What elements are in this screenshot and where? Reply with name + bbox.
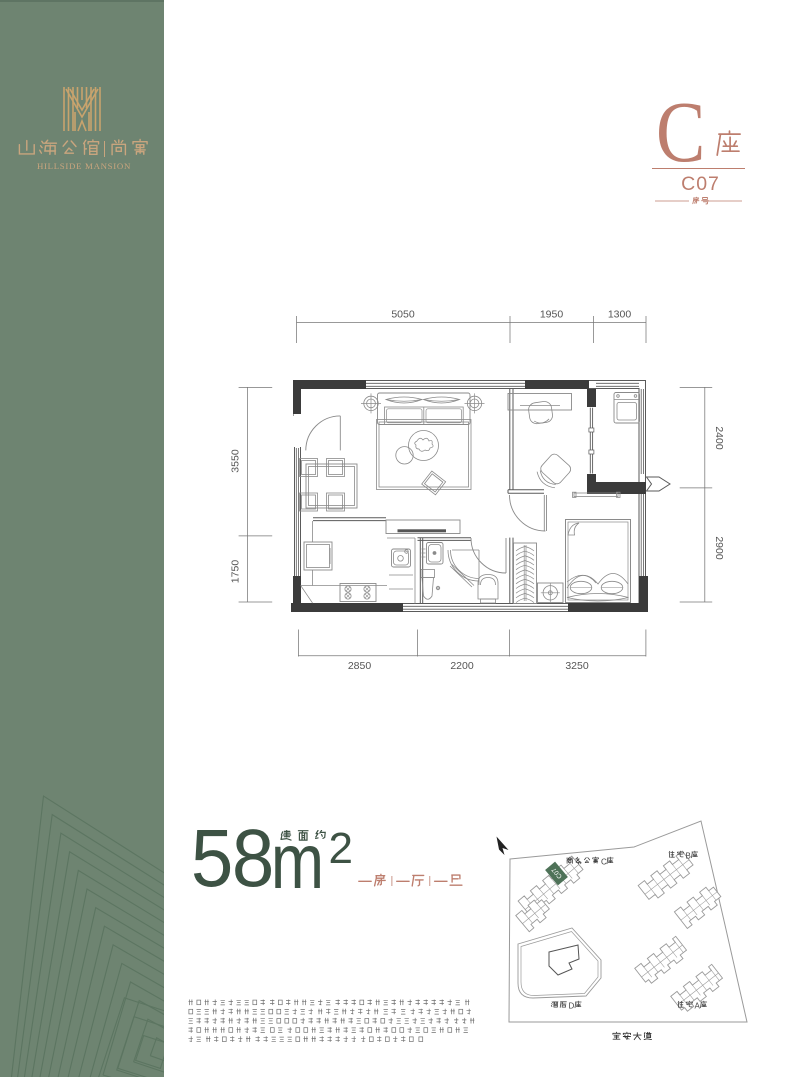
- svg-text:1950: 1950: [540, 309, 564, 321]
- svg-text:3550: 3550: [230, 449, 242, 473]
- svg-text:2400: 2400: [713, 426, 725, 450]
- svg-text:C: C: [601, 858, 607, 867]
- svg-text:1750: 1750: [230, 560, 242, 584]
- svg-text:1300: 1300: [608, 309, 632, 321]
- svg-text:2900: 2900: [713, 536, 725, 560]
- svg-text:3250: 3250: [565, 660, 589, 672]
- svg-text:A: A: [695, 1002, 701, 1011]
- svg-text:2850: 2850: [348, 660, 372, 672]
- svg-text:5050: 5050: [391, 309, 415, 321]
- svg-text:2200: 2200: [450, 660, 474, 672]
- svg-text:B: B: [686, 852, 691, 861]
- svg-text:D: D: [569, 1002, 575, 1011]
